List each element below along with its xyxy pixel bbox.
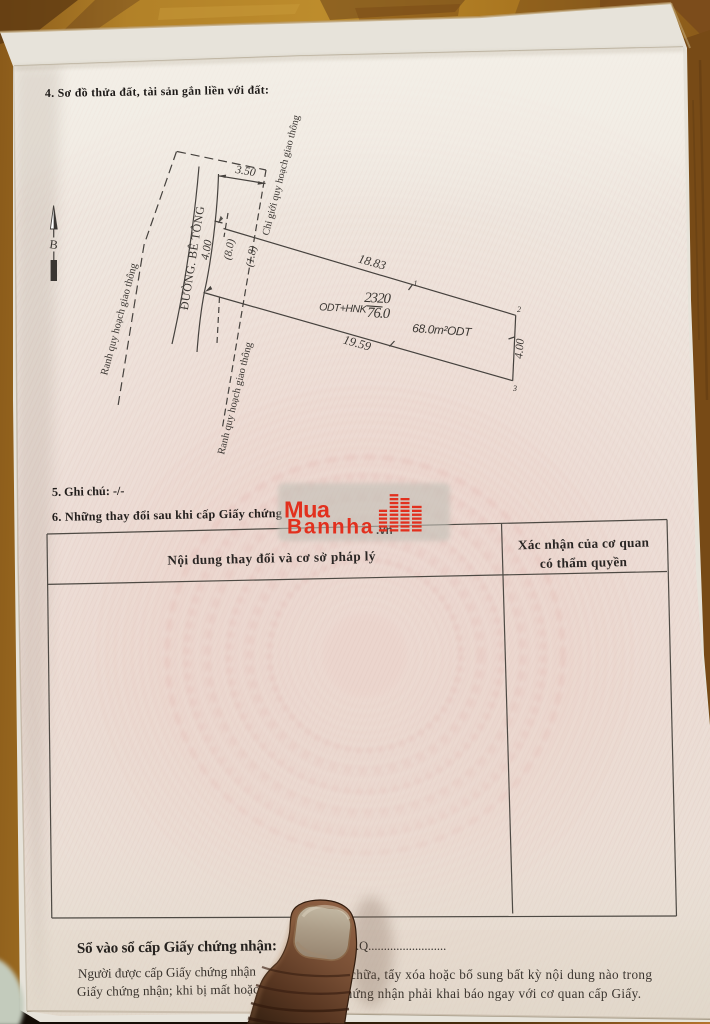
svg-text:có thẩm quyền: có thẩm quyền xyxy=(540,554,628,571)
svg-text:1: 1 xyxy=(414,279,418,288)
svg-text:2: 2 xyxy=(517,305,521,314)
svg-text:3: 3 xyxy=(512,384,517,393)
svg-text:Xác nhận của cơ quan: Xác nhận của cơ quan xyxy=(518,535,650,553)
svg-text:ODT+HNK: ODT+HNK xyxy=(319,301,368,316)
svg-text:Giấy chứng nhận; khi bị mất ho: Giấy chứng nhận; khi bị mất hoặc xyxy=(77,981,259,999)
svg-text:4.00: 4.00 xyxy=(513,338,527,359)
svg-text:76.0: 76.0 xyxy=(367,305,392,322)
svg-text:Người được cấp Giấy chứng nhận: Người được cấp Giấy chứng nhận xyxy=(78,964,257,981)
svg-text:chữa, tẩy xóa hoặc bổ sung bất: chữa, tẩy xóa hoặc bổ sung bất kỳ nội du… xyxy=(350,967,652,982)
svg-text:5. Ghi chú: -/-: 5. Ghi chú: -/- xyxy=(52,484,125,499)
svg-text:Sổ vào sổ cấp Giấy chứng nhận:: Sổ vào sổ cấp Giấy chứng nhận: xyxy=(77,938,277,957)
